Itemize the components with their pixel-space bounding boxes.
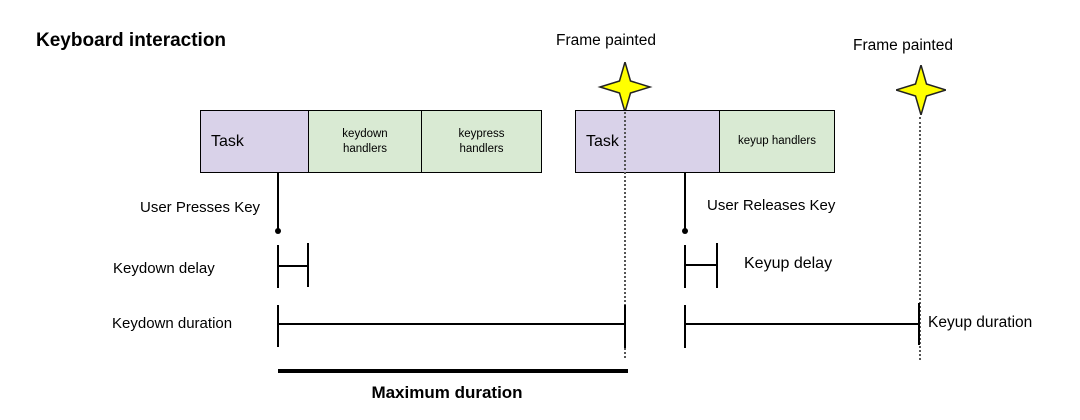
maximum-duration-label: Maximum duration [327, 383, 567, 403]
keyup-delay-span-line [684, 264, 718, 266]
key-press-event-dot [275, 228, 281, 234]
diagram-title: Keyboard interaction [36, 30, 226, 52]
task-block: Task [576, 111, 719, 172]
keypress-handlers-label: keypress handlers [446, 127, 518, 156]
user-releases-key-label: User Releases Key [707, 197, 835, 214]
keydown-task-bar: Task keydown handlers keypress handlers [200, 110, 542, 173]
keydown-handlers-block: keydown handlers [308, 111, 421, 172]
task-block: Task [201, 111, 308, 172]
keyup-duration-label: Keyup duration [928, 314, 1032, 332]
keyboard-interaction-diagram: Keyboard interaction Frame painted Frame… [0, 0, 1080, 420]
keyup-task-bar: Task keyup handlers [575, 110, 835, 173]
key-release-event-dot [682, 228, 688, 234]
user-presses-key-label: User Presses Key [140, 199, 260, 216]
frame-painted-star-icon [597, 62, 653, 112]
key-release-event-line [684, 173, 686, 229]
keydown-duration-end-tick [624, 305, 626, 348]
keydown-duration-label: Keydown duration [112, 315, 232, 332]
keydown-delay-label: Keydown delay [113, 260, 215, 277]
maximum-duration-bar [278, 369, 628, 373]
keyup-duration-span-line [684, 323, 920, 325]
keyup-handlers-block: keyup handlers [719, 111, 834, 172]
keydown-duration-span-line [277, 323, 626, 325]
keypress-handlers-block: keypress handlers [421, 111, 541, 172]
keyup-delay-label: Keyup delay [744, 255, 832, 273]
key-press-event-line [277, 173, 279, 229]
keyup-delay-start-tick [684, 245, 686, 288]
keyup-duration-start-tick [684, 305, 686, 348]
keydown-duration-start-tick [277, 305, 279, 347]
frame-painted-label-2: Frame painted [853, 37, 953, 55]
keydown-handlers-label: keydown handlers [329, 127, 401, 156]
frame-painted-label-1: Frame painted [556, 32, 656, 50]
keyup-handlers-label: keyup handlers [738, 134, 816, 148]
keydown-delay-span-line [277, 265, 309, 267]
task-label: Task [211, 133, 244, 151]
task-label: Task [586, 133, 619, 151]
frame-painted-star-icon [896, 65, 946, 115]
